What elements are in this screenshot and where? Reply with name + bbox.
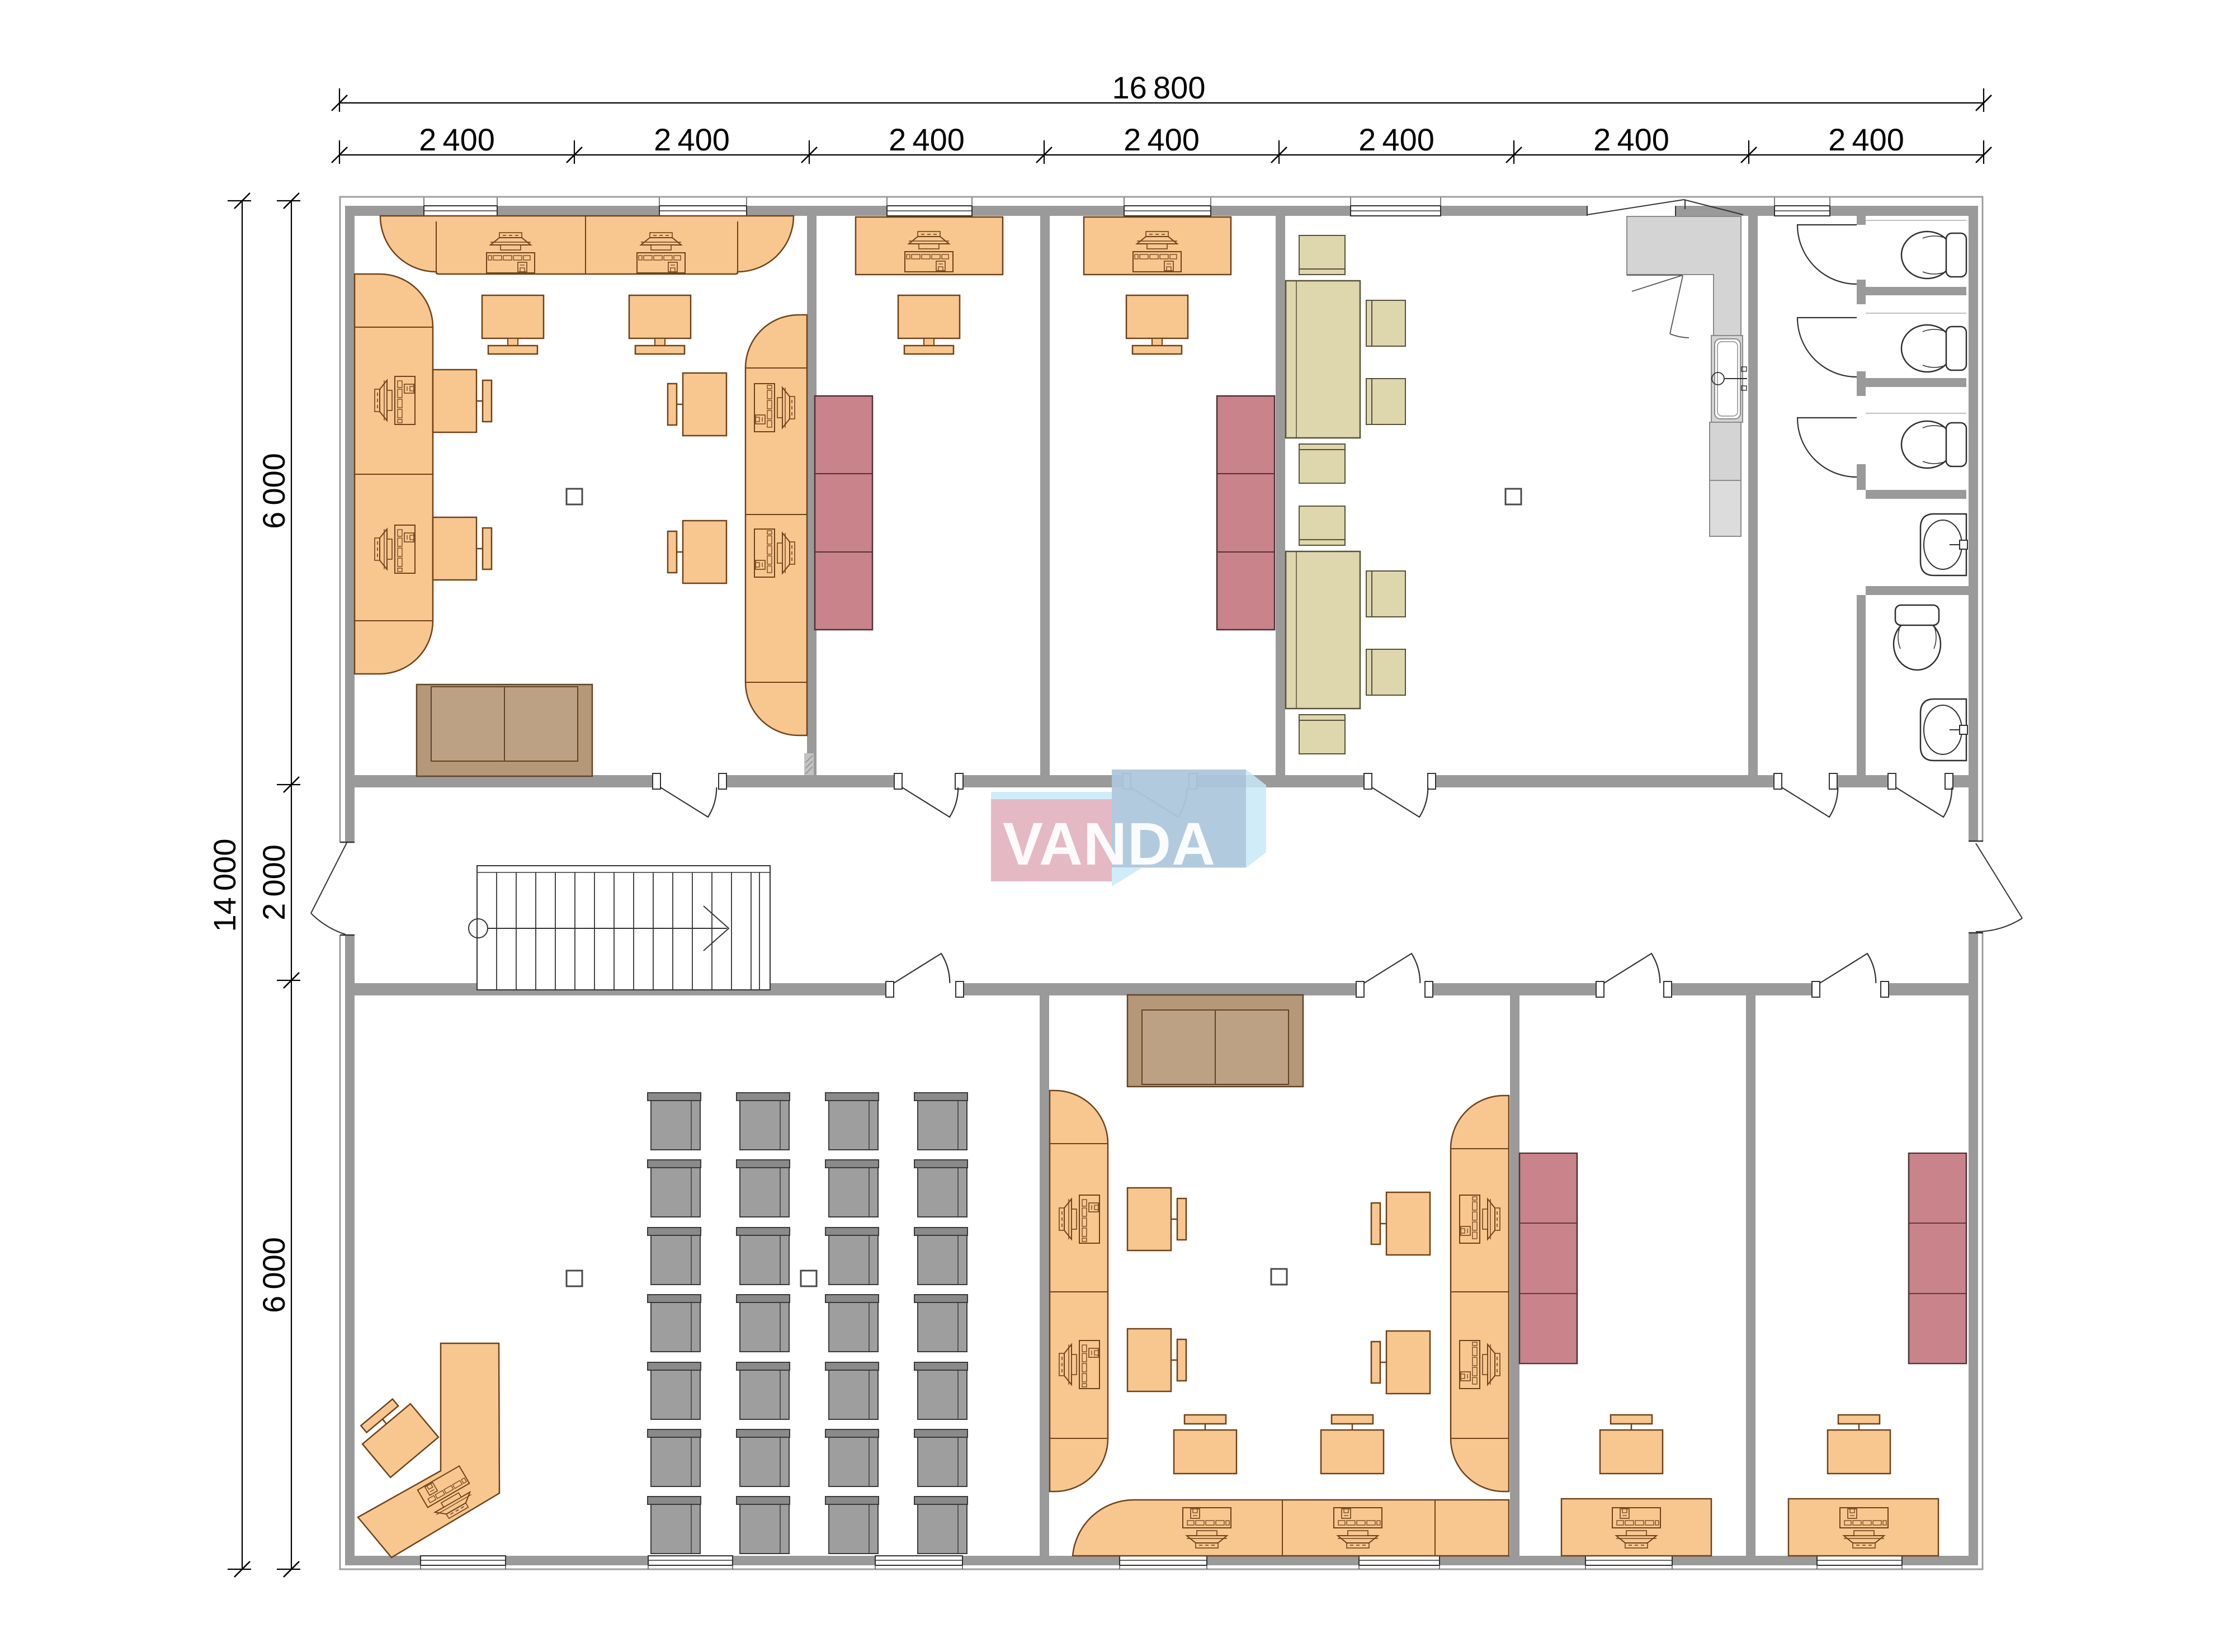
svg-text:2 400: 2 400 (419, 122, 495, 157)
svg-text:16 800: 16 800 (1112, 70, 1206, 105)
svg-text:2 400: 2 400 (1124, 122, 1200, 157)
svg-text:14 000: 14 000 (207, 839, 242, 932)
svg-text:2 400: 2 400 (654, 122, 730, 157)
svg-text:VANDA: VANDA (1003, 810, 1216, 877)
svg-text:2 400: 2 400 (1593, 122, 1669, 157)
svg-text:6 000: 6 000 (256, 453, 291, 529)
svg-text:2 400: 2 400 (1358, 122, 1434, 157)
svg-text:2 400: 2 400 (889, 122, 965, 157)
svg-text:6 000: 6 000 (256, 1237, 291, 1313)
svg-text:2 000: 2 000 (256, 844, 291, 921)
svg-text:2 400: 2 400 (1828, 122, 1904, 157)
